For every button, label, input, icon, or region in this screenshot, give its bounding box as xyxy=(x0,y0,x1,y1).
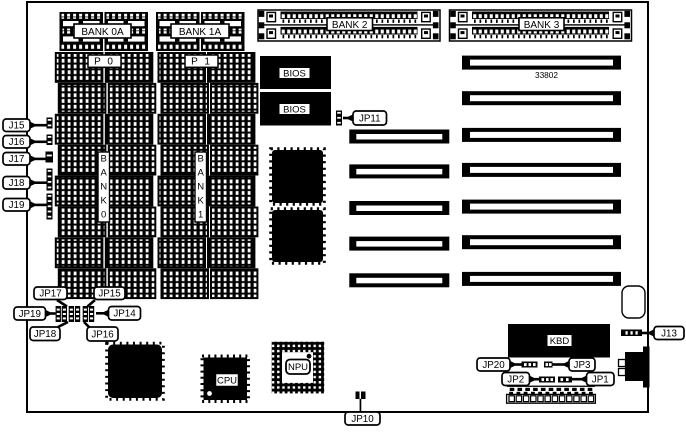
svg-text:N: N xyxy=(100,182,107,193)
svg-text:BANK 3: BANK 3 xyxy=(524,20,560,31)
svg-text:KBD: KBD xyxy=(550,336,570,347)
svg-text:JP10: JP10 xyxy=(351,414,374,425)
svg-text:BIOS: BIOS xyxy=(283,69,306,80)
svg-text:JP11: JP11 xyxy=(359,113,381,124)
svg-text:JP19: JP19 xyxy=(19,309,41,320)
svg-text:JP14: JP14 xyxy=(113,309,136,320)
svg-text:JP1: JP1 xyxy=(592,374,609,385)
svg-text:K: K xyxy=(101,196,108,207)
svg-text:P 0: P 0 xyxy=(94,57,115,68)
svg-text:J15: J15 xyxy=(9,121,25,132)
svg-text:JP20: JP20 xyxy=(482,360,505,371)
svg-text:JP17: JP17 xyxy=(39,289,61,300)
svg-text:1: 1 xyxy=(198,210,203,221)
svg-text:B: B xyxy=(101,154,107,165)
svg-text:J19: J19 xyxy=(9,200,25,211)
svg-text:K: K xyxy=(198,196,205,207)
svg-text:BIOS: BIOS xyxy=(283,105,306,116)
svg-text:JP3: JP3 xyxy=(574,360,591,371)
svg-text:JP16: JP16 xyxy=(91,329,114,340)
svg-text:BANK 1A: BANK 1A xyxy=(179,27,222,38)
svg-text:A: A xyxy=(101,168,108,179)
svg-text:JP15: JP15 xyxy=(98,289,121,300)
svg-text:J16: J16 xyxy=(9,137,25,148)
svg-text:J17: J17 xyxy=(9,154,25,165)
svg-text:N: N xyxy=(197,182,204,193)
svg-text:NPU: NPU xyxy=(288,362,308,373)
svg-text:JP2: JP2 xyxy=(507,374,524,385)
svg-text:B: B xyxy=(198,154,204,165)
svg-text:CPU: CPU xyxy=(217,375,237,386)
svg-text:JP18: JP18 xyxy=(34,329,57,340)
svg-text:A: A xyxy=(198,168,205,179)
svg-text:P 1: P 1 xyxy=(191,57,212,68)
svg-text:0: 0 xyxy=(101,210,106,221)
svg-text:J13: J13 xyxy=(661,328,677,339)
svg-text:BANK 0A: BANK 0A xyxy=(81,27,124,38)
svg-text:33802: 33802 xyxy=(535,70,558,80)
svg-text:J18: J18 xyxy=(9,178,25,189)
svg-text:BANK 2: BANK 2 xyxy=(332,20,368,31)
